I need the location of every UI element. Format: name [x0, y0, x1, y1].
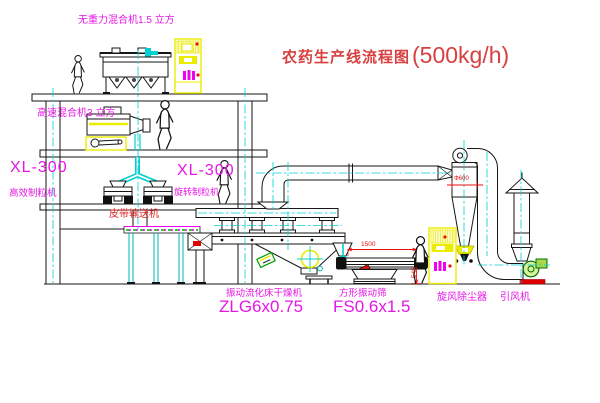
- label-cyclone: 旋风除尘器: [437, 293, 487, 303]
- knob-icon: [183, 71, 186, 80]
- indicator-light-icon: [195, 42, 198, 45]
- knob-icon: [434, 262, 437, 271]
- flow-diagram-canvas: 农药生产线流程图 (500kg/h) 无重力混合机1.5 立方 高速混合机3 立…: [0, 0, 600, 403]
- label-belt-conveyor: 皮带输送机: [109, 210, 159, 220]
- label-fan: 引风机: [500, 293, 530, 303]
- dimension-sieve-height: 545: [412, 267, 419, 278]
- label-granulator-left-name: 高效制粒机: [9, 189, 57, 199]
- label-high-speed-mixer: 高速混合机3 立方: [37, 109, 115, 119]
- label-granulator-right-name: 旋转制粒机: [174, 188, 219, 197]
- induced-draft-fan: [520, 259, 547, 284]
- belt-conveyor: [60, 227, 200, 285]
- fluid-bed-dryer: [188, 209, 345, 285]
- indicator-light-icon: [196, 73, 199, 76]
- dimension-cyclone-dia: Φ600: [454, 176, 469, 182]
- indicator-light-icon: [448, 264, 451, 267]
- knob-icon: [188, 70, 191, 80]
- label-dryer-model: ZLG6x0.75: [219, 298, 303, 315]
- diagram-title: 农药生产线流程图 (500kg/h): [282, 42, 509, 65]
- label-gravity-free-mixer: 无重力混合机1.5 立方: [78, 16, 175, 26]
- label-sieve-model: FS0.6x1.5: [333, 298, 411, 315]
- nameplate-icon: [257, 253, 275, 268]
- exhaust-stack: [506, 173, 538, 262]
- control-cabinet-top: [175, 39, 201, 93]
- knob-icon: [439, 261, 442, 271]
- gravity-free-mixer: [100, 48, 171, 94]
- knob-icon: [192, 71, 195, 80]
- indicator-light-icon: [443, 235, 446, 238]
- label-granulator-left-model: XL-300: [10, 160, 68, 176]
- knob-icon: [443, 262, 446, 271]
- control-cabinet-ground: [429, 228, 456, 284]
- fan-and-stack: [477, 173, 547, 285]
- dimension-sieve-length: 1500: [361, 242, 375, 249]
- person-icon: [71, 55, 84, 93]
- title-text: 农药生产线流程图: [282, 50, 410, 65]
- label-granulator-right-model: XL-300: [177, 163, 235, 179]
- person-icon: [156, 101, 173, 150]
- title-capacity: (500kg/h): [412, 44, 509, 67]
- exhaust-duct: [258, 164, 438, 210]
